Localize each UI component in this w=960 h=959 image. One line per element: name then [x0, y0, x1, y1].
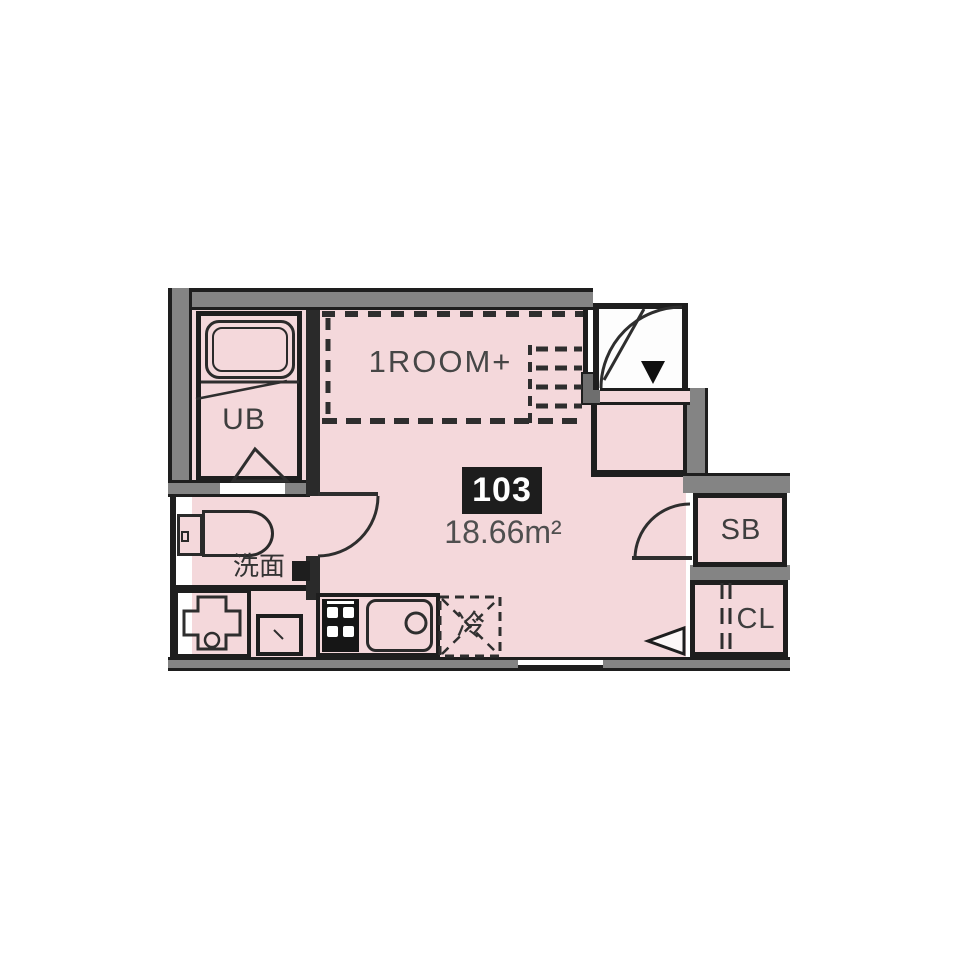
- floor-area-label: 18.66m²: [428, 516, 578, 550]
- entrance-step: [600, 388, 690, 405]
- wall-washroom-upper: [306, 310, 320, 496]
- wall-left: [168, 288, 192, 497]
- unit-number-badge: 103: [462, 467, 542, 514]
- unit-bath-label: UB: [216, 404, 272, 436]
- refrigerator-label: 冷: [452, 611, 490, 641]
- closet-label: CL: [718, 604, 794, 634]
- washbasin-vanity: [174, 589, 251, 658]
- kitchen-sink: [366, 599, 433, 652]
- toilet-handle: [181, 531, 189, 542]
- bathtub-inner: [212, 327, 288, 372]
- wall-above-shoebox: [683, 473, 790, 493]
- entrance-marker-icon: [641, 361, 665, 384]
- shoe-box-label: SB: [700, 515, 782, 545]
- wall-between-sb-cl: [690, 565, 790, 580]
- wall-bottom: [168, 657, 790, 671]
- bottom-window: [518, 657, 603, 668]
- washer-space: [256, 614, 303, 656]
- room-type-label: 1ROOM+: [368, 346, 513, 379]
- bath-door-opening: [220, 480, 285, 497]
- floorplan-canvas: 1ROOM+ 103 18.66m² UB SB CL 洗面 冷: [0, 0, 960, 959]
- toilet-bowl: [202, 510, 274, 557]
- entrance-hall-floor: [591, 405, 683, 477]
- washbasin-label: 洗面: [222, 553, 296, 580]
- wall-ladder-side: [583, 310, 588, 373]
- wall-top: [168, 288, 593, 310]
- stove: [322, 599, 359, 652]
